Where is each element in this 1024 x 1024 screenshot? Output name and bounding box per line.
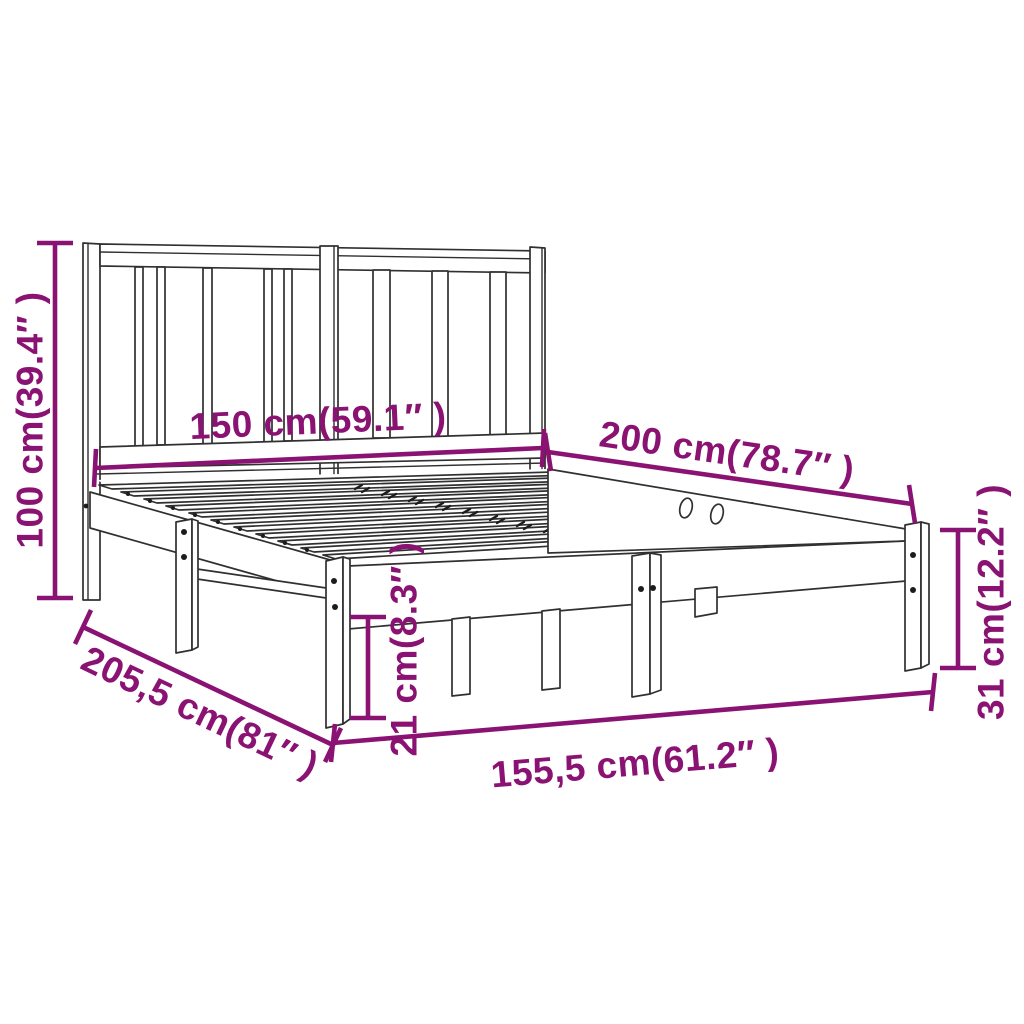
- bed-frame-line-drawing: [0, 0, 1024, 1024]
- product-dimension-diagram: 100 cm(39.4″ ) 150 cm(59.1″ ) 200 cm(78.…: [0, 0, 1024, 1024]
- dimension-label-clearance: 21 cm(8.3″ ): [386, 542, 423, 757]
- dimension-label-side-height: 31 cm(12.2″ ): [973, 484, 1010, 720]
- dimension-label-height: 100 cm(39.4″ ): [12, 291, 49, 548]
- slatted-base: [90, 469, 906, 629]
- dimension-clearance-line: [350, 617, 386, 718]
